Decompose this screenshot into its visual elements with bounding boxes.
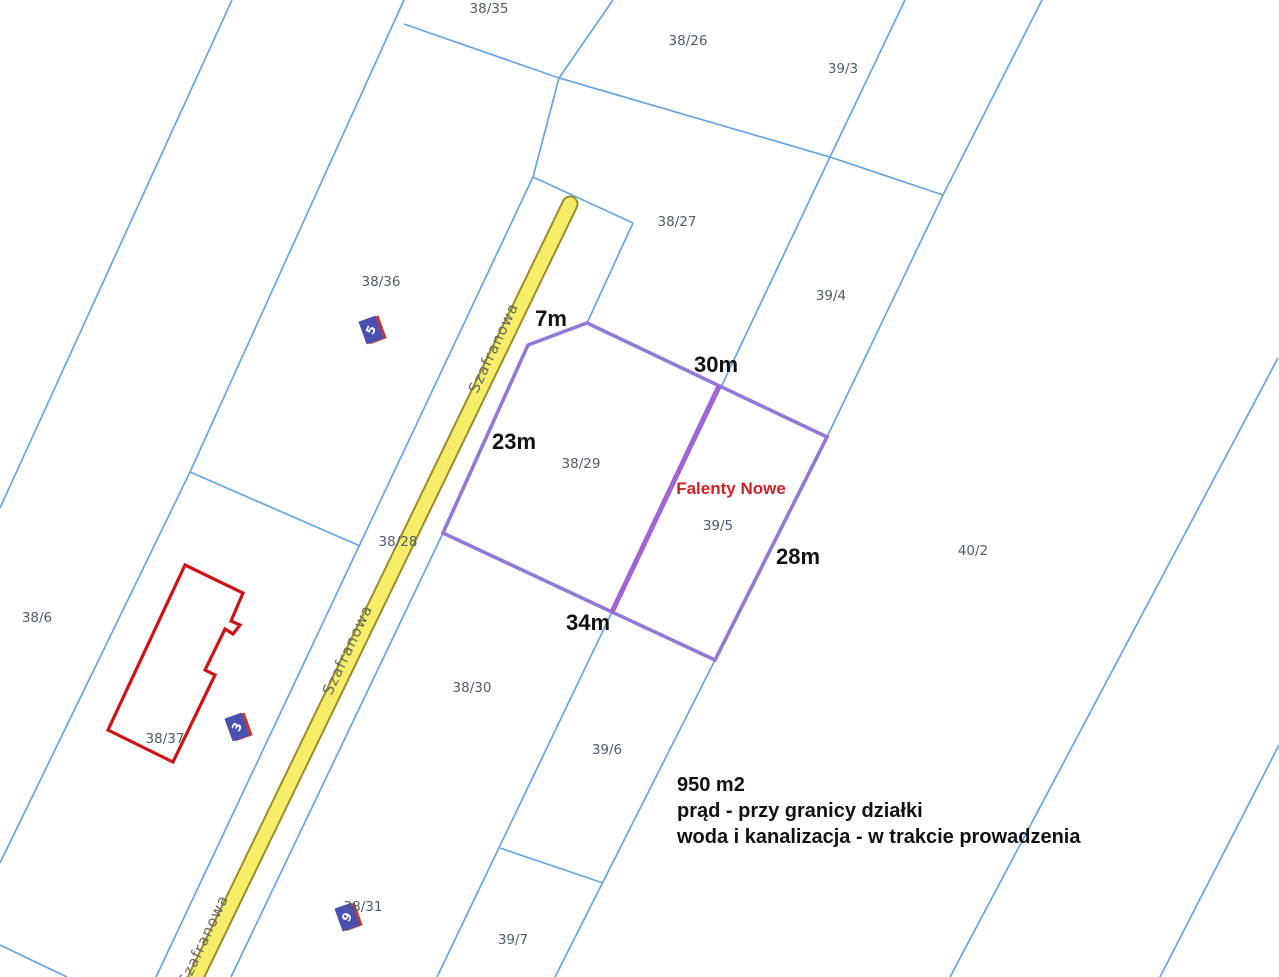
parcel-label-38-31: 38/31: [344, 899, 383, 915]
house-marker-5: 5: [358, 315, 386, 346]
house-marker-3: 3: [224, 712, 252, 743]
dimension-label-34m: 34m: [566, 610, 610, 635]
cadastral-map-stage: SzafranowaSzafranowaSzafranowa53938/3538…: [0, 0, 1279, 977]
boundary-line-west-2: [0, 0, 404, 863]
boundary-line-parcel-3827-west: [587, 223, 633, 323]
parcel-label-39-5: 39/5: [703, 518, 733, 534]
boundary-line-east-2: [950, 358, 1278, 977]
info-line-area: 950 m2: [677, 772, 1080, 798]
parcel-label-39-6: 39/6: [592, 742, 622, 758]
boundary-line-corner-southwest: [0, 945, 67, 977]
parcel-label-38-26: 38/26: [669, 33, 708, 49]
boundary-line-road-head-cross: [533, 177, 633, 223]
parcel-label-38-35: 38/35: [470, 1, 509, 17]
parcel-label-38-30: 38/30: [453, 680, 492, 696]
parcel-label-38-29: 38/29: [562, 456, 601, 472]
dimension-label-23m: 23m: [492, 429, 536, 454]
boundary-line-cross-north: [404, 24, 943, 195]
info-line-power: prąd - przy granicy działki: [677, 798, 1080, 824]
dimension-label-30m: 30m: [694, 352, 738, 377]
boundary-line-road-east: [231, 323, 587, 977]
dimension-label-28m: 28m: [776, 544, 820, 569]
boundary-line-cross-south: [500, 848, 603, 883]
parcel-label-38-37: 38/37: [146, 731, 185, 747]
parcel-label-38-27: 38/27: [658, 214, 697, 230]
boundary-line-north-spur: [533, 0, 613, 177]
parcel-label-39-3: 39/3: [828, 61, 858, 77]
parcel-label-38-28: 38/28: [379, 534, 418, 550]
parcel-label-39-7: 39/7: [498, 932, 528, 948]
dimension-label-7m: 7m: [535, 306, 567, 331]
boundary-line-cross-west: [190, 472, 360, 546]
plot-divider: [612, 386, 719, 612]
parcel-label-39-4: 39/4: [816, 288, 846, 304]
parcel-label-38-36: 38/36: [362, 274, 401, 290]
plot-info-text: 950 m2 prąd - przy granicy działki woda …: [677, 772, 1080, 850]
place-label: Falenty Nowe: [676, 479, 786, 498]
boundary-line-east-3: [1160, 745, 1279, 977]
cadastral-map-canvas: SzafranowaSzafranowaSzafranowa53938/3538…: [0, 0, 1279, 977]
parcel-label-38-6: 38/6: [22, 610, 52, 626]
info-line-water: woda i kanalizacja - w trakcie prowadzen…: [677, 824, 1080, 850]
boundary-line-west-1: [0, 0, 232, 508]
parcel-label-40-2: 40/2: [958, 543, 988, 559]
